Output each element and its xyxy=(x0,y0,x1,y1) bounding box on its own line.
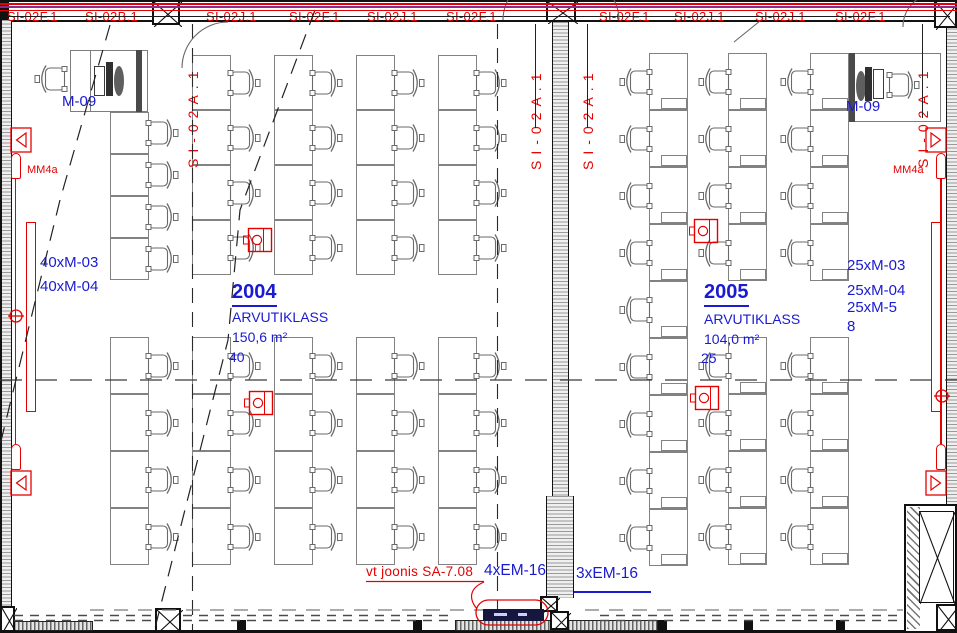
chair-icon xyxy=(780,522,814,552)
desk-pc-shelf xyxy=(740,439,766,450)
chair-icon xyxy=(309,178,343,208)
desk-pc-shelf xyxy=(740,496,766,507)
desk xyxy=(438,337,477,394)
teacher-unit-label: M-09 xyxy=(62,93,96,110)
monitor-screen-icon xyxy=(114,66,124,96)
desk xyxy=(110,154,149,196)
desk xyxy=(438,451,477,508)
chair-icon xyxy=(145,160,179,190)
desk-partition xyxy=(136,50,142,112)
desk xyxy=(110,112,149,154)
desk xyxy=(192,508,231,565)
desk-pc-shelf xyxy=(822,496,848,507)
monitor-icon xyxy=(106,62,113,96)
riser-pipe-cap xyxy=(11,153,21,179)
pc-tower-icon xyxy=(94,66,105,96)
desk-pc-shelf xyxy=(740,382,766,393)
chair-icon xyxy=(309,123,343,153)
chair-icon xyxy=(227,123,261,153)
radiator xyxy=(931,222,941,412)
chair-icon xyxy=(473,178,507,208)
chair-icon xyxy=(309,465,343,495)
desk xyxy=(110,238,149,280)
desk xyxy=(438,110,477,165)
equipment-label: 25xM-04 xyxy=(847,282,905,299)
trunking-label: 3xEM-16 xyxy=(576,565,638,583)
desk xyxy=(356,508,395,565)
chair-icon xyxy=(780,124,814,154)
right-wall xyxy=(946,25,957,507)
chair-icon xyxy=(391,123,425,153)
desk-pc-shelf xyxy=(661,269,687,280)
chair-icon xyxy=(309,351,343,381)
chair-icon xyxy=(145,522,179,552)
chair-icon xyxy=(309,68,343,98)
chair-icon xyxy=(473,123,507,153)
window-sill-hatch xyxy=(9,621,93,631)
chair-icon xyxy=(473,233,507,263)
desk xyxy=(274,220,313,275)
chair-icon xyxy=(391,351,425,381)
cable-tray-line xyxy=(0,10,957,12)
room-type-label: ARVUTIKLASS xyxy=(704,311,800,327)
chair-icon xyxy=(698,124,732,154)
chair-icon xyxy=(145,351,179,381)
desk-pc-shelf xyxy=(822,98,848,109)
window-mullion xyxy=(237,620,246,630)
desk xyxy=(356,337,395,394)
service-pipe-line xyxy=(0,6,957,7)
chair-icon xyxy=(619,523,653,553)
teacher-unit-label: M-09 xyxy=(846,98,880,115)
riser-pipe-cap xyxy=(936,153,946,179)
desk xyxy=(274,165,313,220)
chair-icon xyxy=(227,178,261,208)
chair-icon xyxy=(391,233,425,263)
note-leader-line xyxy=(472,582,484,609)
desk-pc-shelf xyxy=(740,553,766,564)
desk xyxy=(438,220,477,275)
chair-icon xyxy=(619,67,653,97)
chair-icon xyxy=(780,465,814,495)
room-workplaces-label: 25 xyxy=(701,350,717,366)
trunking-label: 4xEM-16 xyxy=(484,562,546,580)
chair-icon xyxy=(145,465,179,495)
desk xyxy=(274,337,313,394)
desk-pc-shelf xyxy=(661,383,687,394)
column xyxy=(0,606,15,632)
desk-pc-shelf xyxy=(822,439,848,450)
room-workplaces-label: 40 xyxy=(229,349,245,365)
door-leaf xyxy=(734,21,760,42)
speaker-circuit-label: MM4a xyxy=(27,164,58,176)
pc-tower-icon xyxy=(873,69,884,99)
cable-tray-label-vertical: SI-02A.1 xyxy=(528,68,544,170)
desk-pc-shelf xyxy=(661,98,687,109)
desk xyxy=(192,165,231,220)
loudspeaker-icon xyxy=(10,127,32,153)
window-mullion xyxy=(836,620,845,630)
riser-valve-icon xyxy=(8,308,24,324)
riser-valve-icon xyxy=(934,388,950,404)
chair-icon xyxy=(473,68,507,98)
desk-pc-shelf xyxy=(822,269,848,280)
desk-pc-shelf xyxy=(661,326,687,337)
chair-icon xyxy=(619,409,653,439)
desk xyxy=(438,394,477,451)
desk xyxy=(274,508,313,565)
cable-tray-label-vertical: SI-02A.1 xyxy=(915,66,931,168)
desk xyxy=(110,196,149,238)
room-number-2004: 2004 xyxy=(232,281,277,307)
column xyxy=(540,596,558,612)
equipment-label: 8 xyxy=(847,318,855,335)
chair-icon xyxy=(391,522,425,552)
chair-icon xyxy=(391,68,425,98)
desk xyxy=(192,337,231,394)
desk xyxy=(274,451,313,508)
desk xyxy=(438,508,477,565)
desk-pc-shelf xyxy=(740,98,766,109)
chair-icon xyxy=(391,408,425,438)
desk xyxy=(192,220,231,275)
chair-icon xyxy=(473,465,507,495)
desk xyxy=(274,394,313,451)
desk-pc-shelf xyxy=(740,269,766,280)
chair-icon xyxy=(780,408,814,438)
floor-plan: SI-02F.1 SI-02B.1 SI-02J.1 SI-02F.1 SI-0… xyxy=(0,0,957,633)
desk-pc-shelf xyxy=(740,212,766,223)
desk xyxy=(274,55,313,110)
window-mullion xyxy=(744,620,753,630)
room-area-label: 104,0 m² xyxy=(704,331,759,347)
window-mullion xyxy=(413,620,422,630)
desk xyxy=(438,165,477,220)
equipment-label: 25xM-5 xyxy=(847,299,897,316)
desk-pc-shelf xyxy=(822,212,848,223)
chair-icon xyxy=(698,465,732,495)
desk xyxy=(110,337,149,394)
column xyxy=(936,604,957,631)
chair-icon xyxy=(619,238,653,268)
desk-pc-shelf xyxy=(822,382,848,393)
loudspeaker-icon xyxy=(925,470,947,496)
chair-icon xyxy=(473,351,507,381)
equipment-label: 40xM-03 xyxy=(40,254,98,271)
desk-pc-shelf xyxy=(661,212,687,223)
floor-outlet-icon xyxy=(244,390,274,416)
column xyxy=(155,608,181,632)
window-mullion xyxy=(658,620,667,630)
chair-icon xyxy=(145,202,179,232)
desk xyxy=(110,451,149,508)
chair-icon xyxy=(227,68,261,98)
desk xyxy=(356,165,395,220)
desk xyxy=(110,508,149,565)
room-area-label: 150,6 m² xyxy=(232,329,287,345)
chair-icon xyxy=(698,408,732,438)
chair-icon xyxy=(227,465,261,495)
chair-icon xyxy=(145,244,179,274)
floor-outlet-icon xyxy=(243,227,273,253)
cable-tray-line xyxy=(0,3,957,5)
chair-icon xyxy=(391,465,425,495)
chair-icon xyxy=(698,67,732,97)
desk xyxy=(110,394,149,451)
riser-pipe-cap xyxy=(936,444,946,470)
riser-pipe-cap xyxy=(11,444,21,470)
chair-icon xyxy=(619,181,653,211)
chair-icon xyxy=(391,178,425,208)
chair-icon xyxy=(780,181,814,211)
chair-icon xyxy=(473,522,507,552)
drawing-reference-note: vt joonis SA-7.08 xyxy=(366,564,473,579)
equipment-label: 40xM-04 xyxy=(40,278,98,295)
chair-icon xyxy=(780,351,814,381)
chair-icon xyxy=(780,67,814,97)
desk-pc-shelf xyxy=(822,553,848,564)
desk xyxy=(192,451,231,508)
desk xyxy=(274,110,313,165)
chair-icon xyxy=(698,522,732,552)
chair-icon xyxy=(619,352,653,382)
desk-pc-shelf xyxy=(822,155,848,166)
desk xyxy=(356,451,395,508)
chair-icon xyxy=(698,181,732,211)
cable-tray-label-vertical: SI-02A.1 xyxy=(185,66,201,168)
chair-icon xyxy=(309,233,343,263)
desk xyxy=(356,110,395,165)
top-outer-wall-line xyxy=(0,0,957,2)
desk xyxy=(356,55,395,110)
chair-icon xyxy=(619,295,653,325)
chair-icon xyxy=(227,522,261,552)
middle-partition-wall-wide xyxy=(546,496,574,598)
equipment-label: 25xM-03 xyxy=(847,257,905,274)
desk-pc-shelf xyxy=(661,155,687,166)
floor-outlet-icon xyxy=(690,385,720,411)
desk-pc-shelf xyxy=(661,554,687,565)
chair-icon xyxy=(780,238,814,268)
radiator xyxy=(26,222,36,412)
desk xyxy=(356,220,395,275)
chair-icon xyxy=(145,118,179,148)
chair-icon xyxy=(309,522,343,552)
chair-icon xyxy=(145,408,179,438)
chair-icon xyxy=(309,408,343,438)
loudspeaker-icon xyxy=(10,470,32,496)
monitor-icon xyxy=(865,67,872,101)
speaker-circuit-label: MM4a xyxy=(893,164,924,176)
floor-outlet-icon xyxy=(689,218,719,244)
desk-pc-shelf xyxy=(661,440,687,451)
cable-tray-label-vertical: SI-02A.1 xyxy=(580,68,596,170)
shaft-x-brace xyxy=(919,511,954,603)
room-type-label: ARVUTIKLASS xyxy=(232,309,328,325)
desk xyxy=(438,55,477,110)
chair-icon xyxy=(473,408,507,438)
desk-pc-shelf xyxy=(740,155,766,166)
column xyxy=(550,611,569,630)
room-number-2005: 2005 xyxy=(704,281,749,307)
desk-pc-shelf xyxy=(661,497,687,508)
desk xyxy=(192,394,231,451)
chair-icon xyxy=(34,64,68,94)
chair-icon xyxy=(619,466,653,496)
chair-icon xyxy=(619,124,653,154)
reference-line xyxy=(6,16,950,17)
desk xyxy=(356,394,395,451)
